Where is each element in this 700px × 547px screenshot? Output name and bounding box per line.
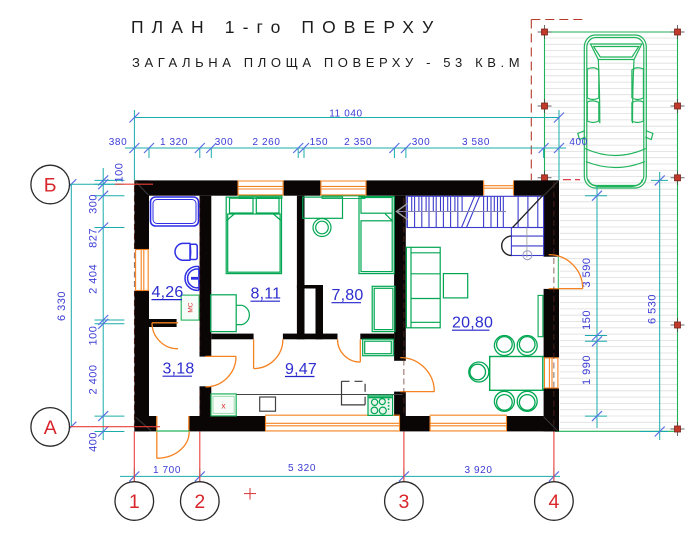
svg-text:400: 400 <box>569 137 588 148</box>
svg-text:300: 300 <box>215 137 234 148</box>
svg-text:2: 2 <box>194 491 205 513</box>
svg-text:300: 300 <box>88 194 100 214</box>
svg-text:100: 100 <box>88 326 100 346</box>
svg-text:150: 150 <box>310 137 329 148</box>
svg-text:20,80: 20,80 <box>452 315 493 332</box>
svg-text:11 040: 11 040 <box>329 109 362 120</box>
svg-text:7,80: 7,80 <box>332 287 364 304</box>
svg-text:Б: Б <box>44 175 57 197</box>
svg-text:1 700: 1 700 <box>153 465 181 476</box>
svg-text:2 260: 2 260 <box>252 137 280 148</box>
svg-text:4,26: 4,26 <box>152 284 184 301</box>
svg-text:9,47: 9,47 <box>285 361 317 378</box>
svg-text:2 350: 2 350 <box>344 137 372 148</box>
svg-text:ЗАГАЛЬНА ПЛОЩА ПОВЕРХУ - 53 КВ: ЗАГАЛЬНА ПЛОЩА ПОВЕРХУ - 53 КВ.М <box>132 55 524 70</box>
svg-text:1 320: 1 320 <box>160 137 188 148</box>
svg-text:827: 827 <box>88 228 100 248</box>
svg-text:3 920: 3 920 <box>464 465 492 476</box>
svg-text:5 320: 5 320 <box>288 463 316 474</box>
svg-text:А: А <box>44 417 57 439</box>
svg-text:380: 380 <box>109 137 128 148</box>
svg-text:400: 400 <box>88 432 100 452</box>
svg-text:3 580: 3 580 <box>462 137 490 148</box>
svg-text:4: 4 <box>548 491 559 513</box>
svg-text:150: 150 <box>581 310 593 330</box>
svg-text:1 990: 1 990 <box>581 355 593 385</box>
svg-text:3,18: 3,18 <box>163 361 195 378</box>
svg-text:МС: МС <box>188 302 195 312</box>
svg-text:2 400: 2 400 <box>88 364 100 394</box>
svg-text:ПЛАН 1-го ПОВЕРХУ: ПЛАН 1-го ПОВЕРХУ <box>131 17 441 37</box>
svg-text:x: x <box>222 402 226 411</box>
svg-text:2 404: 2 404 <box>88 264 100 294</box>
svg-text:6 530: 6 530 <box>647 294 659 324</box>
svg-text:3: 3 <box>398 491 409 513</box>
svg-text:6 330: 6 330 <box>56 291 68 321</box>
svg-text:1: 1 <box>129 491 140 513</box>
svg-text:300: 300 <box>412 137 431 148</box>
svg-text:8,11: 8,11 <box>251 286 282 303</box>
svg-text:100: 100 <box>114 163 126 183</box>
